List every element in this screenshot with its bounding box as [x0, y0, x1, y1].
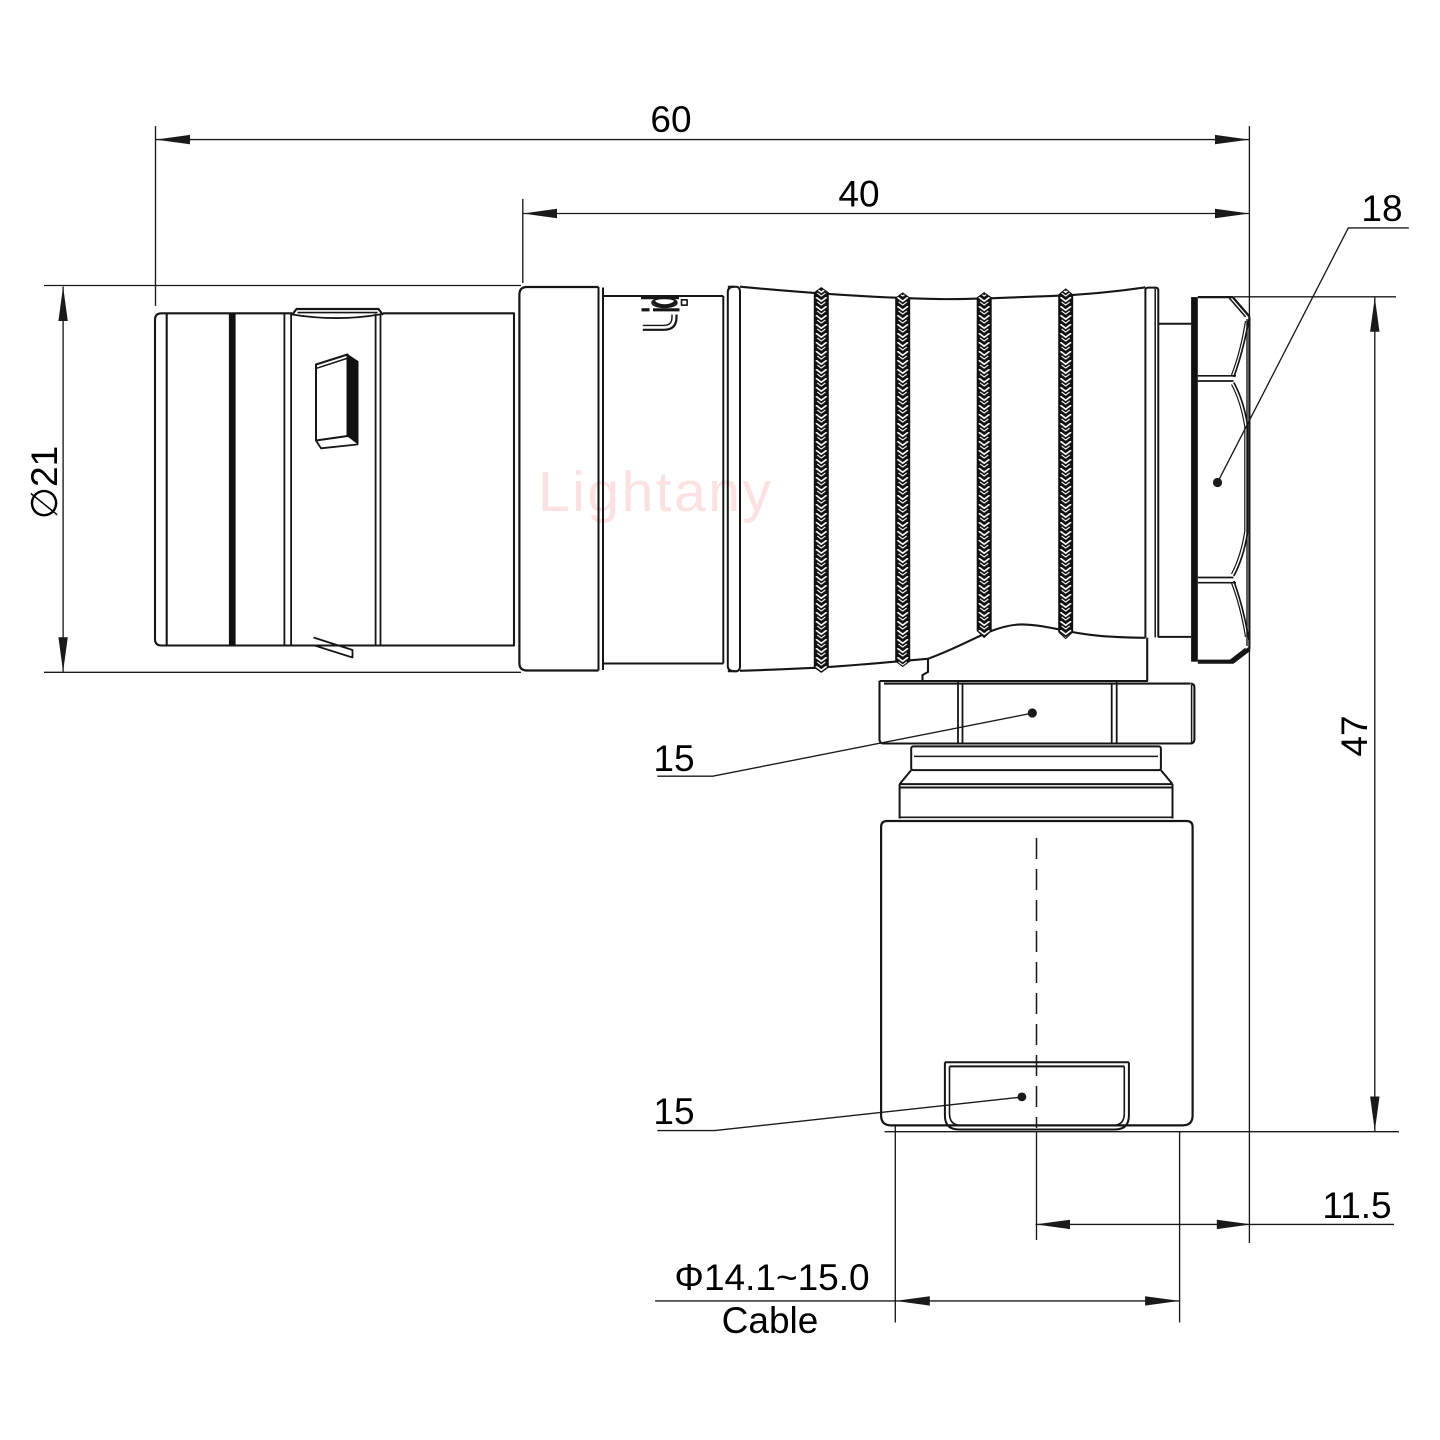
svg-text:60: 60: [650, 99, 691, 140]
svg-text:∅21: ∅21: [24, 446, 65, 519]
svg-text:15: 15: [653, 738, 694, 779]
svg-text:47: 47: [1334, 715, 1375, 756]
svg-text:Φ14.1~15.0: Φ14.1~15.0: [674, 1257, 869, 1298]
svg-text:Cable: Cable: [722, 1300, 819, 1341]
svg-text:15: 15: [653, 1091, 694, 1132]
svg-text:Lightany: Lightany: [538, 460, 774, 524]
svg-text:40: 40: [838, 174, 879, 215]
svg-text:11.5: 11.5: [1322, 1185, 1391, 1226]
svg-text:18: 18: [1361, 188, 1402, 229]
